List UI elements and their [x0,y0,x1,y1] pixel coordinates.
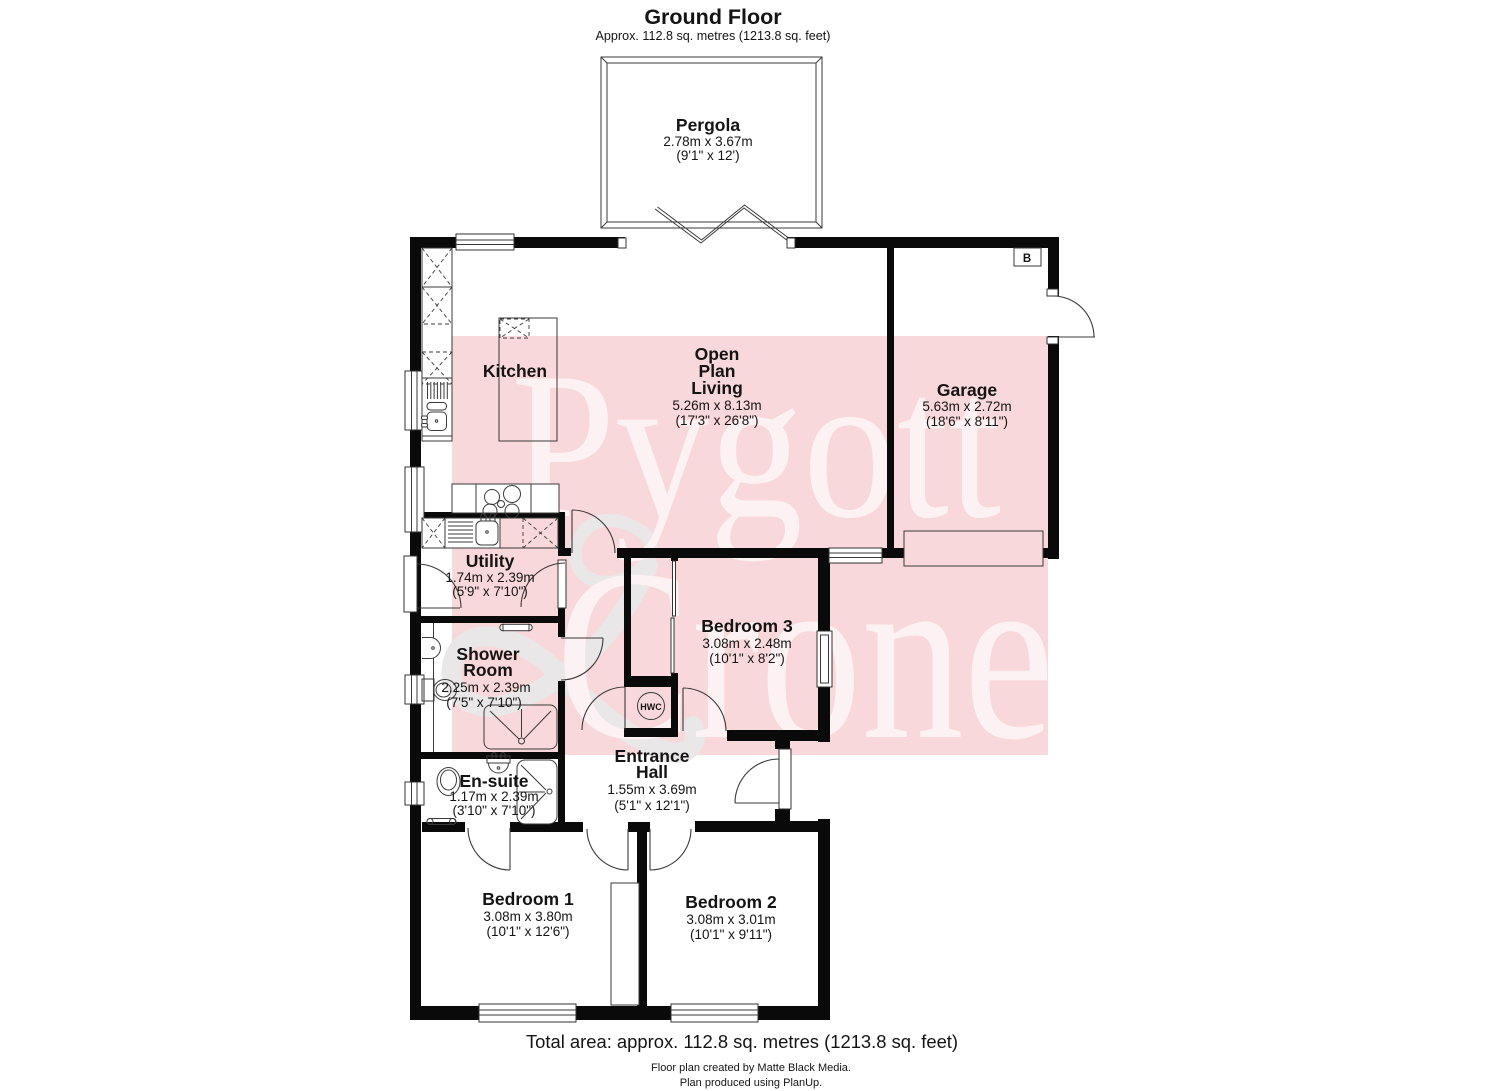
svg-text:Pergola: Pergola [676,115,740,135]
svg-text:2.78m x 3.67m: 2.78m x 3.67m [663,134,752,149]
svg-text:1.55m x 3.69m: 1.55m x 3.69m [607,782,696,797]
svg-text:(3'10" x 7'10"): (3'10" x 7'10") [452,803,535,818]
svg-text:Total area: approx. 112.8 sq.: Total area: approx. 112.8 sq. metres (12… [526,1031,958,1052]
svg-text:3.08m x 3.80m: 3.08m x 3.80m [483,909,572,924]
svg-text:Garage: Garage [937,380,998,400]
svg-text:HWC: HWC [640,702,662,712]
svg-text:1.17m x 2.39m: 1.17m x 2.39m [449,789,538,804]
svg-text:Bedroom 3: Bedroom 3 [701,616,793,636]
svg-text:(10'1" x 8'2"): (10'1" x 8'2") [709,651,785,666]
svg-text:Kitchen: Kitchen [483,361,547,381]
svg-text:Utility: Utility [466,551,515,571]
svg-text:Floor plan created by Matte Bl: Floor plan created by Matte Black Media. [651,1062,851,1074]
svg-text:Ground Floor: Ground Floor [644,5,782,29]
svg-text:Room: Room [463,660,513,680]
svg-text:Plan produced using PlanUp.: Plan produced using PlanUp. [680,1077,822,1089]
svg-text:(5'9" x 7'10"): (5'9" x 7'10") [452,584,528,599]
svg-text:3.08m x 2.48m: 3.08m x 2.48m [702,636,791,651]
svg-text:Bedroom 1: Bedroom 1 [482,889,574,909]
svg-text:(7'5" x 7'10"): (7'5" x 7'10") [446,695,522,710]
svg-text:3.08m x 3.01m: 3.08m x 3.01m [686,912,775,927]
svg-text:En-suite: En-suite [459,771,528,791]
svg-text:5.26m x 8.13m: 5.26m x 8.13m [672,398,761,413]
svg-text:(9'1" x 12'): (9'1" x 12') [676,148,739,163]
svg-text:5.63m x 2.72m: 5.63m x 2.72m [922,399,1011,414]
svg-text:2.25m x 2.39m: 2.25m x 2.39m [441,680,530,695]
svg-text:(18'6" x 8'11"): (18'6" x 8'11") [926,414,1008,429]
svg-text:Hall: Hall [636,762,668,782]
svg-text:Bedroom 2: Bedroom 2 [685,892,777,912]
svg-text:Approx. 112.8 sq. metres (1213: Approx. 112.8 sq. metres (1213.8 sq. fee… [596,29,831,43]
svg-text:B: B [1023,253,1031,265]
svg-text:(10'1" x 9'11"): (10'1" x 9'11") [690,927,772,942]
svg-text:Living: Living [691,378,743,398]
svg-text:(10'1" x 12'6"): (10'1" x 12'6") [486,924,569,939]
svg-text:(17'3" x 26'8"): (17'3" x 26'8") [675,413,758,428]
svg-text:(5'1" x 12'1"): (5'1" x 12'1") [614,798,690,813]
svg-text:1.74m x 2.39m: 1.74m x 2.39m [445,570,534,585]
